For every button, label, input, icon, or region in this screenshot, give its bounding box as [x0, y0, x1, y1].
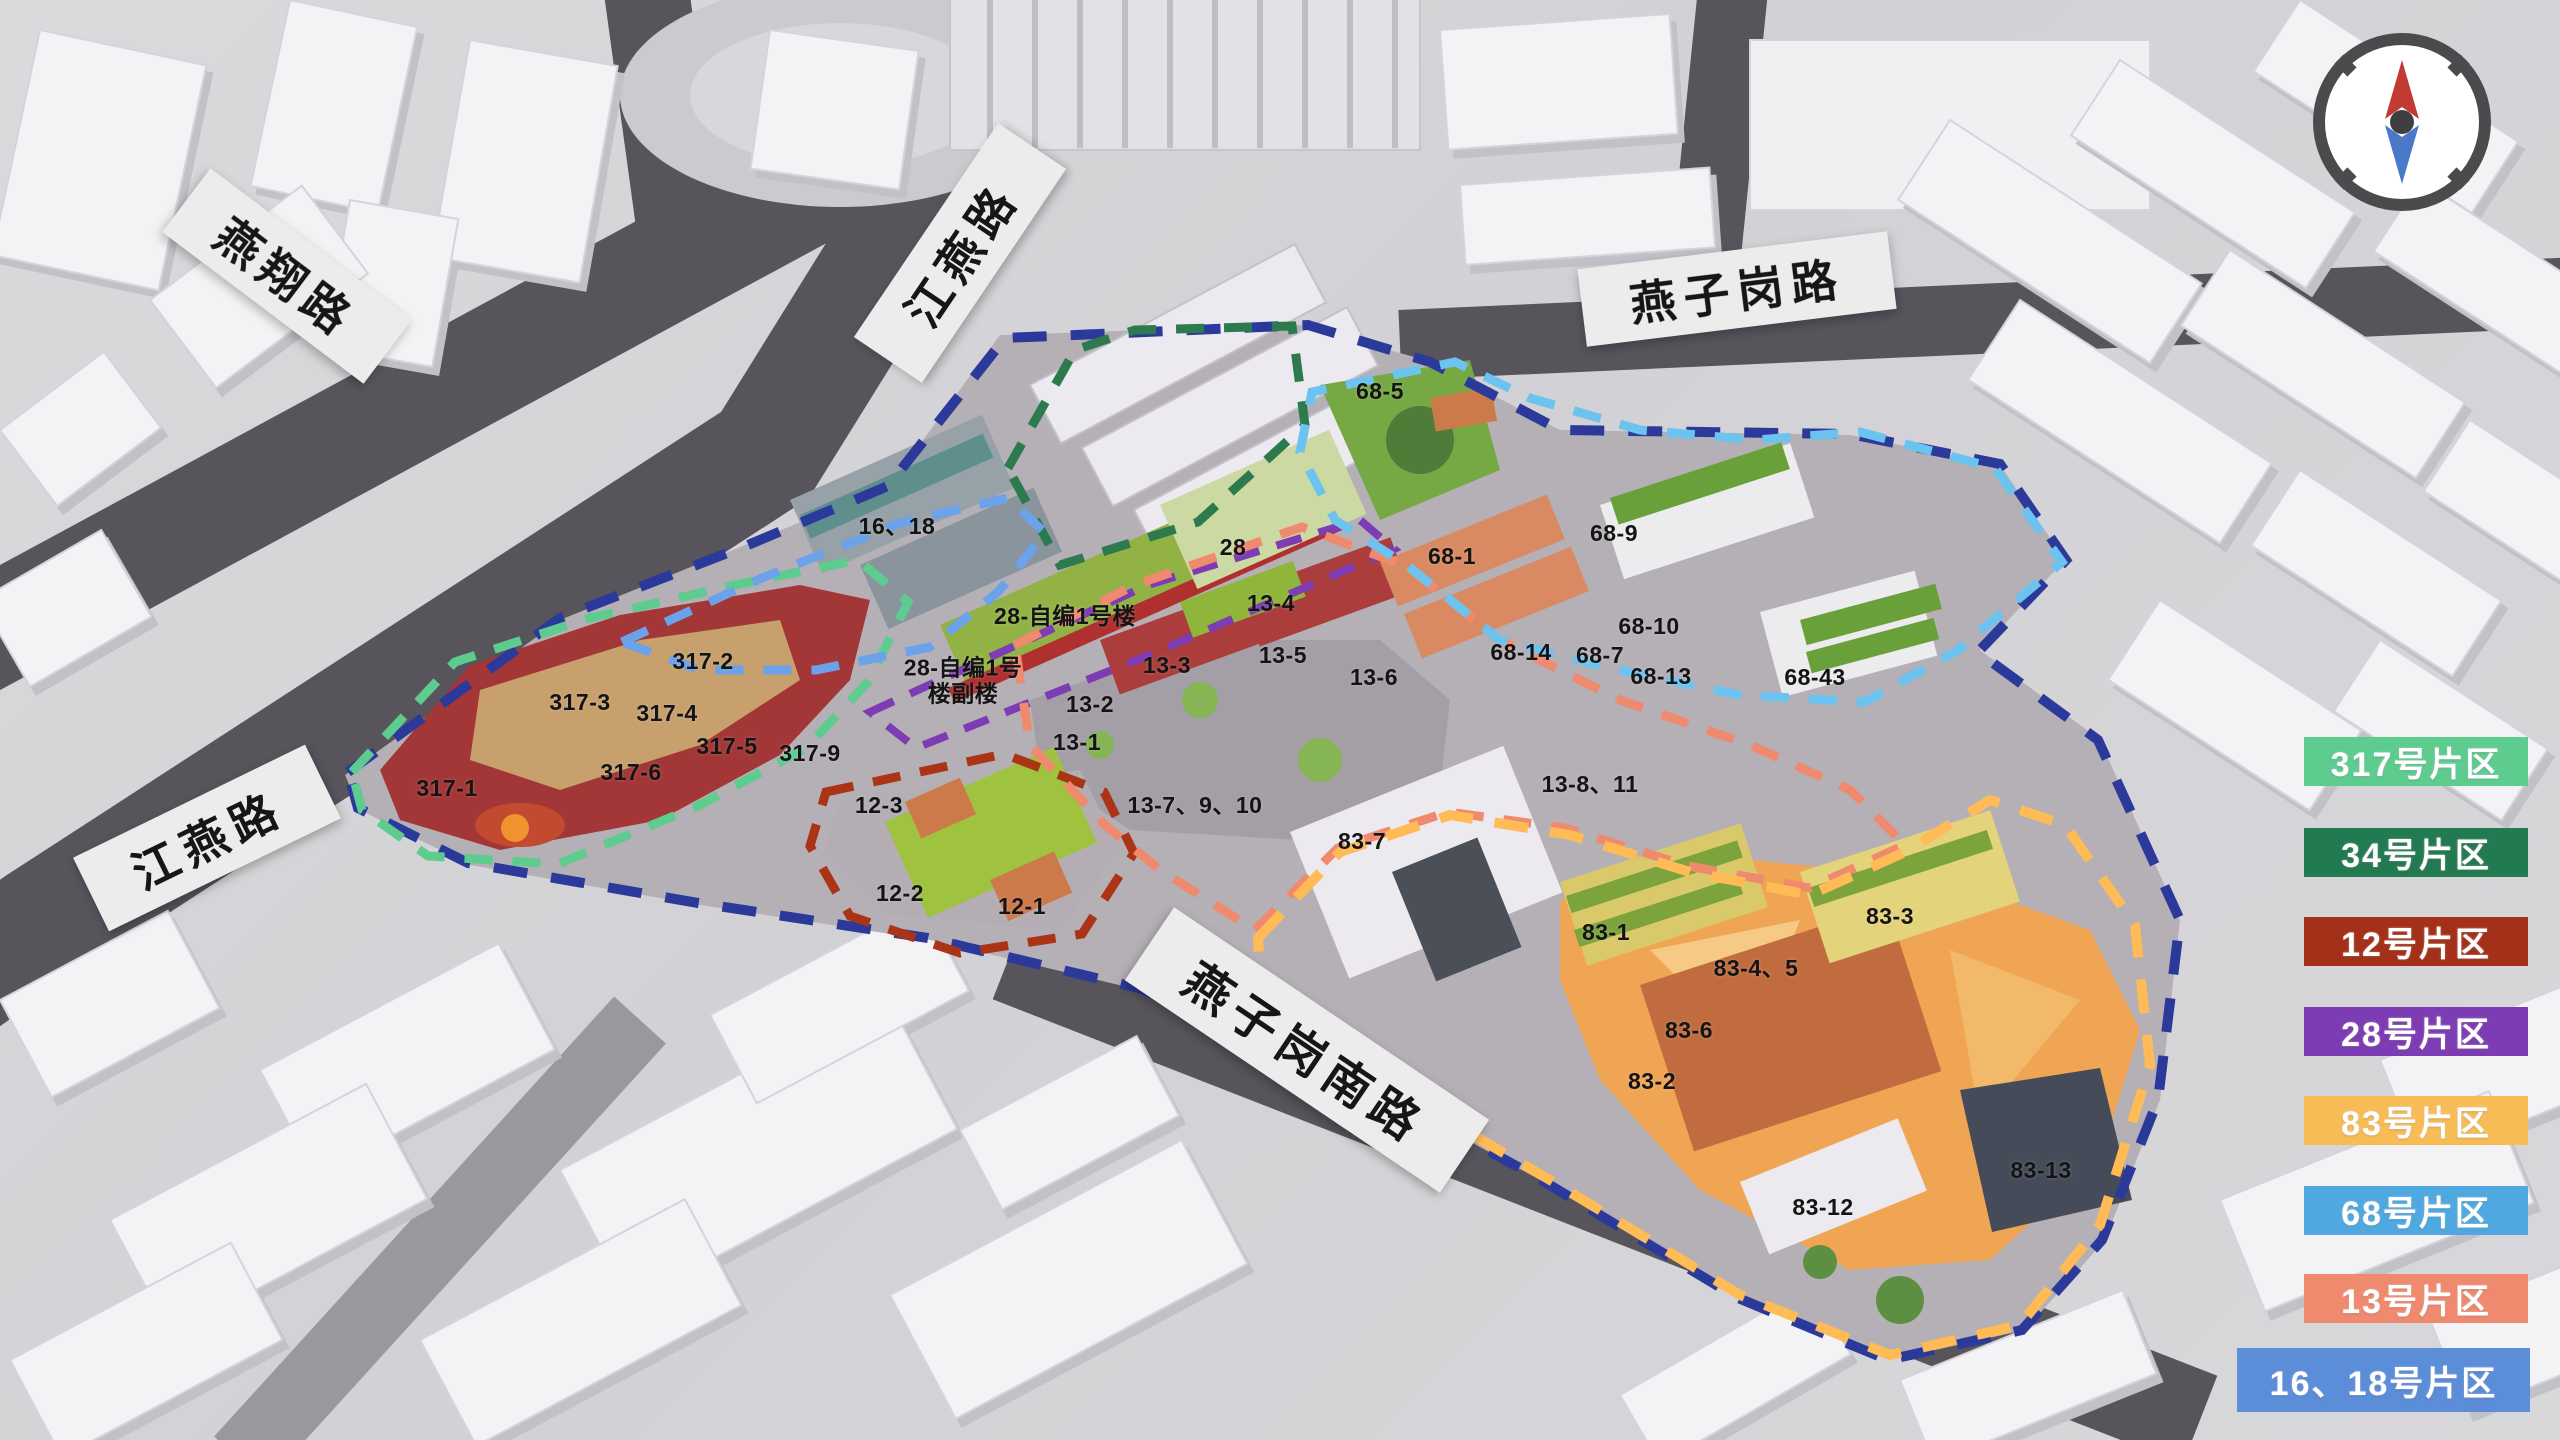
building-label-83-12: 83-12	[1792, 1195, 1853, 1221]
masterplan-map: 燕翔路江燕路燕子岗路江燕路燕子岗南路317-1317-2317-3317-431…	[0, 0, 2560, 1440]
building-label-317-3: 317-3	[549, 690, 610, 716]
building-label-13-2: 13-2	[1066, 692, 1114, 718]
legend-item-6: 13号片区	[2304, 1274, 2528, 1323]
building-label-83-13: 83-13	[2010, 1158, 2071, 1184]
building-label-16、18: 16、18	[859, 514, 936, 540]
building-label-83-2: 83-2	[1628, 1069, 1676, 1095]
building-label-317-6: 317-6	[600, 760, 661, 786]
building-label-28-自编1号楼: 28-自编1号楼	[994, 604, 1136, 630]
building-label-28-自编1号: 28-自编1号 楼副楼	[904, 655, 1023, 707]
building-label-13-8、11: 13-8、11	[1542, 772, 1639, 798]
legend-item-3: 28号片区	[2304, 1007, 2528, 1056]
building-label-68-9: 68-9	[1590, 521, 1638, 547]
building-label-12-2: 12-2	[876, 881, 924, 907]
building-label-68-43: 68-43	[1784, 665, 1845, 691]
building-label-317-5: 317-5	[696, 734, 757, 760]
compass-hub	[2390, 110, 2414, 134]
legend-item-4: 83号片区	[2304, 1096, 2528, 1145]
building-label-12-3: 12-3	[855, 793, 903, 819]
building-label-317-2: 317-2	[672, 649, 733, 675]
legend-item-5: 68号片区	[2304, 1186, 2528, 1235]
building-label-13-6: 13-6	[1350, 665, 1398, 691]
building-label-68-10: 68-10	[1618, 614, 1679, 640]
building-label-68-13: 68-13	[1630, 664, 1691, 690]
legend-item-2: 12号片区	[2304, 917, 2528, 966]
legend-item-7: 16、18号片区	[2237, 1348, 2530, 1412]
building-label-83-1: 83-1	[1582, 920, 1630, 946]
building-label-13-7、9、10: 13-7、9、10	[1128, 793, 1263, 819]
building-label-13-1: 13-1	[1053, 730, 1101, 756]
building-label-13-4: 13-4	[1247, 591, 1295, 617]
map-render	[0, 0, 2560, 1440]
building-label-68-5: 68-5	[1356, 379, 1404, 405]
compass	[2308, 28, 2496, 216]
building-label-317-1: 317-1	[416, 776, 477, 802]
building-label-83-4、5: 83-4、5	[1714, 956, 1799, 982]
building-label-68-1: 68-1	[1428, 544, 1476, 570]
building-label-28: 28	[1220, 535, 1247, 561]
building-label-68-7: 68-7	[1576, 643, 1624, 669]
building-label-83-7: 83-7	[1338, 829, 1386, 855]
legend-item-1: 34号片区	[2304, 828, 2528, 877]
building-label-12-1: 12-1	[998, 894, 1046, 920]
building-label-13-3: 13-3	[1143, 653, 1191, 679]
building-label-83-3: 83-3	[1866, 904, 1914, 930]
building-label-83-6: 83-6	[1665, 1018, 1713, 1044]
building-label-68-14: 68-14	[1490, 640, 1551, 666]
building-label-317-4: 317-4	[636, 701, 697, 727]
building-label-317-9: 317-9	[779, 741, 840, 767]
building-label-13-5: 13-5	[1259, 643, 1307, 669]
legend-item-0: 317号片区	[2304, 737, 2528, 786]
